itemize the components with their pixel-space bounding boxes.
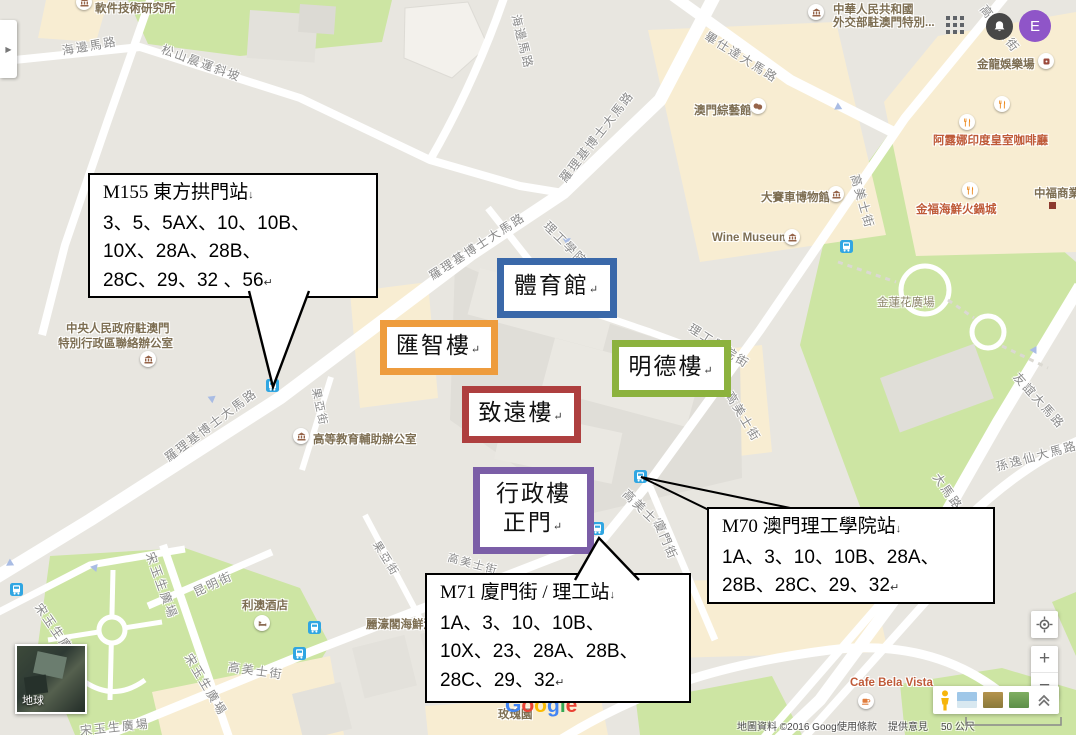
- bus-stop-title: M70 澳門理工學院站: [722, 516, 896, 537]
- bus-routes-line: 28C、29、32 、56: [103, 270, 264, 291]
- bus-routes-line: 1A、3、10、10B、: [440, 610, 689, 639]
- park-circle: [972, 316, 1004, 348]
- callout-m155: M155 東方拱門站↓ 3、5、5AX、10、10B、 10X、28A、28B、…: [88, 173, 378, 298]
- paragraph-mark: ↵: [890, 582, 899, 594]
- poi-label[interactable]: 高等教育輔助辦公室: [313, 431, 417, 447]
- poi-label[interactable]: Cafe Bela Vista: [850, 677, 933, 689]
- bus-routes-line: 3、5、5AX、10、10B、: [103, 210, 376, 239]
- bus-stop-icon[interactable]: [293, 647, 306, 660]
- avatar-letter: E: [1030, 18, 1040, 35]
- feedback-link[interactable]: 提供意見: [888, 718, 928, 733]
- callout-m70: M70 澳門理工學院站↓ 1A、3、10、10B、28A、 28B、28C、29…: [707, 507, 995, 604]
- building-label: 正門: [503, 510, 553, 535]
- paragraph-mark: ↵: [589, 284, 600, 296]
- poi-label[interactable]: 大賽車博物館: [761, 189, 830, 205]
- my-location-button[interactable]: [1031, 611, 1058, 638]
- museum-icon[interactable]: [293, 428, 309, 444]
- earth-view-toggle[interactable]: 地球: [15, 644, 87, 714]
- restaurant-icon[interactable]: [962, 182, 978, 198]
- notifications-bell-icon[interactable]: [986, 13, 1013, 40]
- highlight-box-admin-gate: 行政樓 正門↵: [473, 467, 594, 554]
- map-viewport[interactable]: 海邊馬路 松山晨運斜坡 海邊馬路 畢仕達大馬路 羅理基博士大馬路 羅理基博士大馬…: [0, 0, 1076, 735]
- bus-stop-icon[interactable]: [308, 621, 321, 634]
- imagery-carousel[interactable]: [933, 686, 1059, 714]
- paragraph-mark: ↵: [703, 365, 714, 377]
- apps-grid-icon[interactable]: [946, 16, 964, 34]
- bus-stop-icon[interactable]: [10, 583, 23, 596]
- paragraph-mark: ↵: [553, 411, 564, 423]
- terms-link[interactable]: 使用條款: [837, 718, 877, 733]
- bus-stop-icon[interactable]: [840, 240, 853, 253]
- building-label: 行政樓: [496, 479, 571, 508]
- paragraph-mark: ↵: [471, 344, 482, 356]
- building: [298, 4, 336, 34]
- paragraph-mark: ↵: [264, 277, 273, 289]
- museum-icon[interactable]: [140, 351, 156, 367]
- hotel-icon[interactable]: [254, 615, 270, 631]
- museum-icon[interactable]: [808, 4, 824, 20]
- imagery-thumbnail[interactable]: [983, 692, 1003, 708]
- bus-routes-line: 10X、28A、28B、: [103, 238, 376, 267]
- building-label: 匯智樓: [396, 333, 471, 358]
- paragraph-mark: ↓: [896, 523, 902, 535]
- bus-routes-line: 28B、28C、29、32: [722, 575, 890, 596]
- scale-bar: [965, 716, 1065, 728]
- poi-label[interactable]: 金福海鮮火鍋城: [916, 201, 997, 217]
- bus-stop-icon[interactable]: [266, 379, 279, 392]
- poi-label[interactable]: 特別行政區聯絡辦公室: [58, 335, 173, 351]
- park-circle: [99, 617, 125, 643]
- highlight-box-meng-tak: 明德樓↵: [612, 340, 731, 397]
- bus-routes-line: 1A、3、10、10B、28A、: [722, 544, 993, 573]
- poi-label[interactable]: 金蓮花廣場: [877, 294, 935, 310]
- bus-stop-icon[interactable]: [634, 470, 647, 483]
- restaurant-icon[interactable]: [994, 96, 1010, 112]
- poi-label[interactable]: 中央人民政府駐澳門: [66, 320, 170, 336]
- poi-label[interactable]: 中福商業: [1034, 185, 1076, 201]
- zoom-in-button[interactable]: +: [1031, 646, 1058, 672]
- imagery-thumbnail[interactable]: [957, 692, 977, 708]
- callout-m71: M71 廈門街 / 理工站↓ 1A、3、10、10B、 10X、23、28A、2…: [425, 573, 691, 703]
- poi-label[interactable]: Wine Museum: [712, 232, 789, 244]
- business-icon[interactable]: [1049, 202, 1056, 209]
- side-panel-toggle[interactable]: ▶: [0, 20, 17, 78]
- museum-icon[interactable]: [784, 229, 800, 245]
- highlight-box-wui-chi: 匯智樓↵: [380, 320, 498, 375]
- cafe-icon[interactable]: [858, 693, 874, 709]
- poi-label[interactable]: 利澳酒店: [242, 597, 288, 613]
- poi-label[interactable]: 金龍娛樂場: [977, 56, 1035, 72]
- highlight-box-gymnasium: 體育館↵: [497, 258, 617, 318]
- building-label: 體育館: [514, 273, 589, 298]
- map-copyright: 地圖資料 ©2016 Google: [737, 718, 844, 733]
- poi-label[interactable]: 外交部駐澳門特別...: [833, 14, 935, 30]
- bus-routes-line: 28C、29、32: [440, 670, 555, 691]
- paragraph-mark: ↵: [553, 521, 564, 533]
- poi-label[interactable]: 軟件技術研究所: [95, 0, 176, 16]
- poi-label[interactable]: 阿露娜印度皇室咖啡廳: [933, 132, 1048, 148]
- pegman-icon[interactable]: [939, 690, 951, 711]
- building-label: 致遠樓: [478, 400, 553, 425]
- casino-icon[interactable]: [1038, 53, 1054, 69]
- building-label: 明德樓: [628, 354, 703, 379]
- highlight-box-chi-un: 致遠樓↵: [462, 386, 581, 443]
- earth-label: 地球: [22, 692, 44, 708]
- bus-stop-title: M71 廈門街 / 理工站: [440, 582, 609, 603]
- paragraph-mark: ↓: [248, 189, 254, 201]
- my-location-icon: [1036, 616, 1053, 633]
- paragraph-mark: ↓: [609, 589, 615, 601]
- account-avatar[interactable]: E: [1019, 10, 1051, 42]
- imagery-thumbnail[interactable]: [1009, 692, 1029, 708]
- chevron-right-icon: ▶: [5, 45, 11, 54]
- poi-label[interactable]: 澳門綜藝館: [694, 102, 752, 118]
- bus-routes-line: 10X、23、28A、28B、: [440, 638, 689, 667]
- paragraph-mark: ↵: [555, 677, 564, 689]
- chevron-up-icon[interactable]: [1037, 693, 1051, 707]
- theater-icon[interactable]: [750, 98, 766, 114]
- restaurant-icon[interactable]: [959, 114, 975, 130]
- bus-stop-title: M155 東方拱門站: [103, 182, 248, 203]
- museum-icon[interactable]: [828, 186, 844, 202]
